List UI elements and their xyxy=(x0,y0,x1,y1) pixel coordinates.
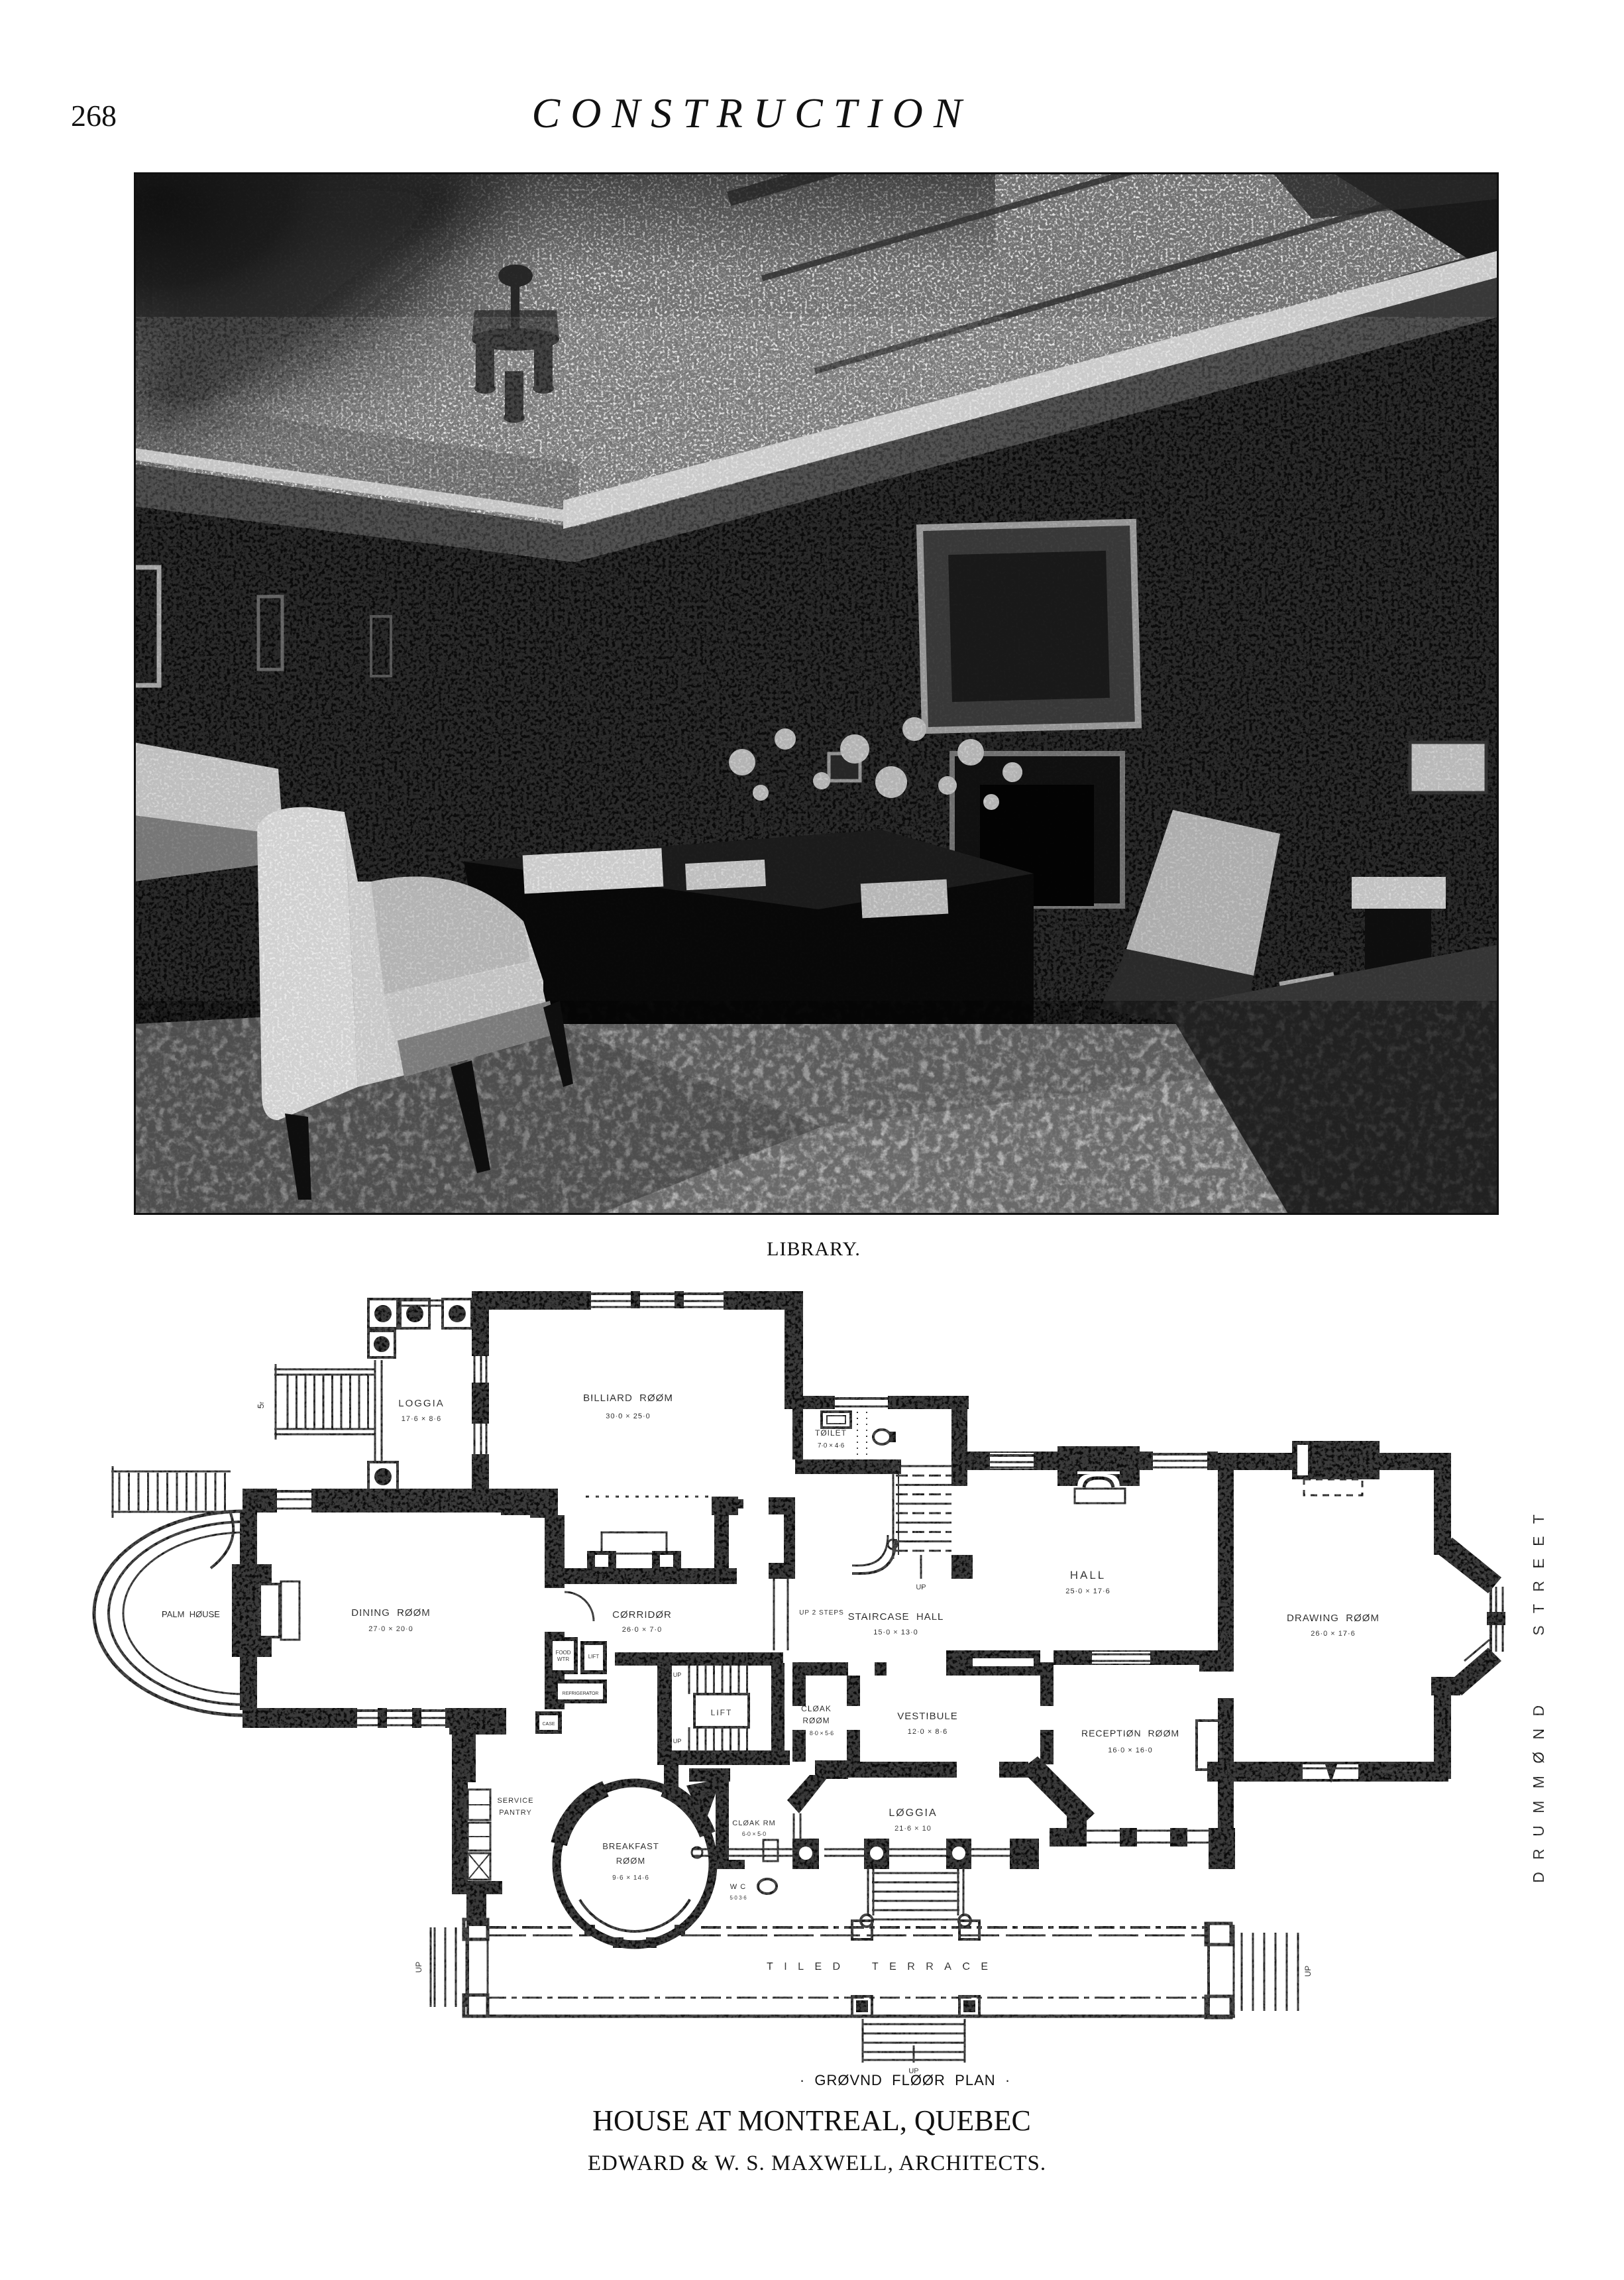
svg-text:268: 268 xyxy=(71,99,117,133)
svg-text:· GRØVND FLØØR PLAN ·: · GRØVND FLØØR PLAN · xyxy=(800,2072,1010,2088)
svg-text:HOUSE AT MONTREAL, QUEBEC: HOUSE AT MONTREAL, QUEBEC xyxy=(592,2104,1031,2137)
svg-text:CONSTRUCTION: CONSTRUCTION xyxy=(532,89,973,137)
svg-text:EDWARD & W. S. MAXWELL, ARCHIT: EDWARD & W. S. MAXWELL, ARCHITECTS. xyxy=(588,2151,1046,2175)
svg-text:LIBRARY.: LIBRARY. xyxy=(767,1238,861,1260)
